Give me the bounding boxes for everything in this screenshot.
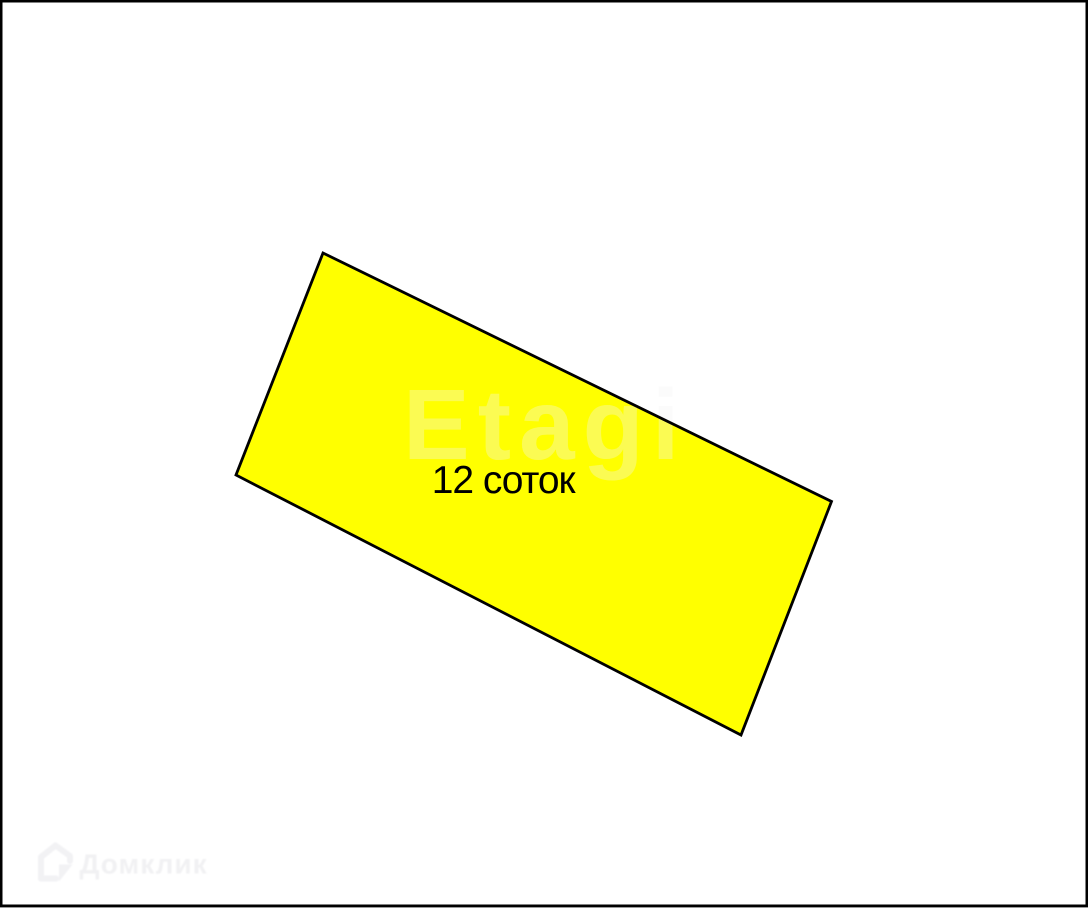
svg-text:Домклик: Домклик — [80, 849, 208, 880]
svg-text:12 соток: 12 соток — [432, 459, 577, 502]
